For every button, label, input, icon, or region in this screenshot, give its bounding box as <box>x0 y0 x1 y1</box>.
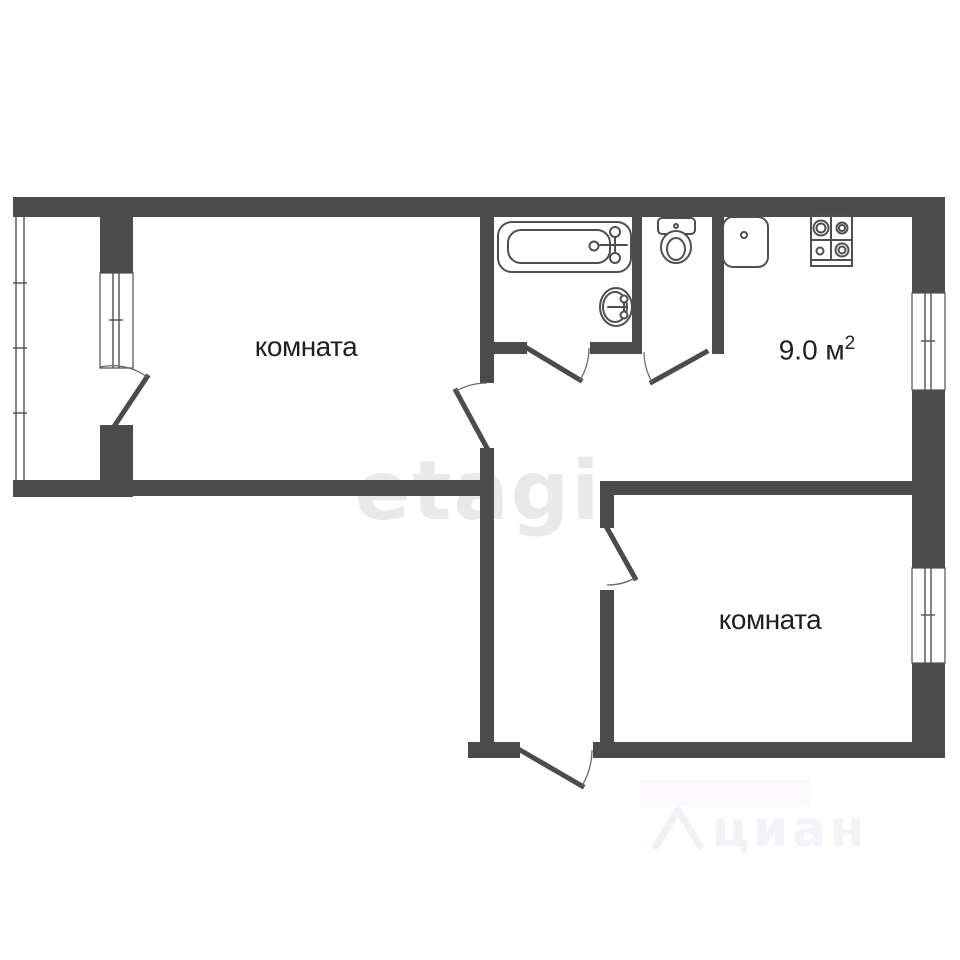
bathroom-door <box>527 348 589 380</box>
balcony-glazing <box>13 217 27 480</box>
wall-bathroom-wc-divider <box>632 217 642 354</box>
wall-right-room-left-upper <box>600 481 614 528</box>
wall-hall-left-lower <box>480 448 494 748</box>
wall-bathroom-bottom-left <box>494 342 527 354</box>
kitchen-window <box>912 293 945 390</box>
left-room-door <box>456 383 487 448</box>
bathtub <box>498 222 631 272</box>
stove <box>811 216 852 266</box>
wall-left-lower <box>100 425 133 481</box>
right-room-window <box>912 568 945 663</box>
kitchen-area-sup: 2 <box>845 333 856 354</box>
wall-top <box>13 197 945 217</box>
watermark-cian-logo-icon <box>656 810 700 846</box>
wall-right-room-left-lower <box>600 590 614 742</box>
right-room-label: комната <box>719 604 821 636</box>
left-room-label: комната <box>255 331 357 363</box>
balcony-door <box>100 366 147 425</box>
floor-plan: etagi циан <box>0 0 960 960</box>
wc-door <box>644 352 706 382</box>
kitchen-sink <box>723 217 768 267</box>
toilet <box>658 218 695 263</box>
left-room-window <box>100 273 133 368</box>
wall-right-room-top <box>600 481 912 495</box>
kitchen-area-label: 9.0 м2 <box>779 333 856 366</box>
wall-right <box>912 197 945 758</box>
windows <box>13 217 945 663</box>
doors <box>100 348 706 786</box>
kitchen-area-value: 9.0 м <box>779 334 845 365</box>
walls <box>13 197 945 758</box>
bathroom-sink <box>600 288 632 326</box>
right-room-door <box>607 528 635 585</box>
wall-hall-left-upper <box>480 217 494 383</box>
wall-left-room-bottom <box>100 480 494 496</box>
floor-plan-drawing <box>0 0 960 960</box>
wall-left-upper <box>100 217 133 273</box>
